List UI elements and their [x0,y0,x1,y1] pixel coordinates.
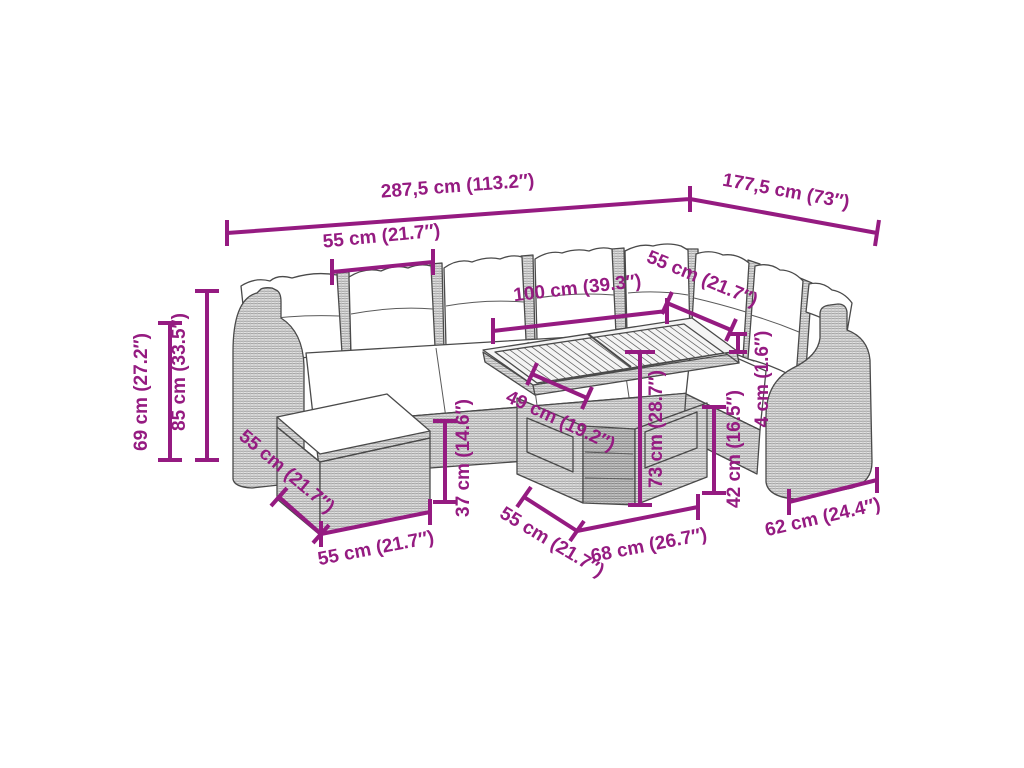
dim-label-total-height: 85 cm (33.5″) [169,313,190,431]
dim-label-total-length: 287,5 cm (113.2″) [380,170,535,202]
dim-label-armrest-module-width: 62 cm (24.4″) [763,494,883,541]
dim-label-seat-height: 37 cm (14.6″) [453,399,474,517]
dim-label-cushion-thickness: 4 cm (1.6″) [752,331,773,428]
dim-total-height: 85 cm (33.5″) [169,291,219,460]
dim-label-armrest-height: 69 cm (27.2″) [131,333,152,451]
dim-label-table-height: 73 cm (28.7″) [646,370,667,488]
dim-label-seat-height-front: 42 cm (16.5″) [724,390,745,508]
dim-label-footstool-width: 55 cm (21.7″) [316,527,436,570]
back-cushion [349,265,435,354]
dim-total-depth: 177,5 cm (73″) [690,170,879,246]
dim-line-total-depth [690,199,879,246]
diagram-svg: 287,5 cm (113.2″) 177,5 cm (73″) 55 cm (… [0,0,1024,768]
dimension-diagram-canvas: 287,5 cm (113.2″) 177,5 cm (73″) 55 cm (… [0,0,1024,768]
dim-line-total-height [195,291,219,460]
dim-label-table-base-width: 68 cm (26.7″) [589,524,709,567]
dim-total-length: 287,5 cm (113.2″) [227,170,690,246]
